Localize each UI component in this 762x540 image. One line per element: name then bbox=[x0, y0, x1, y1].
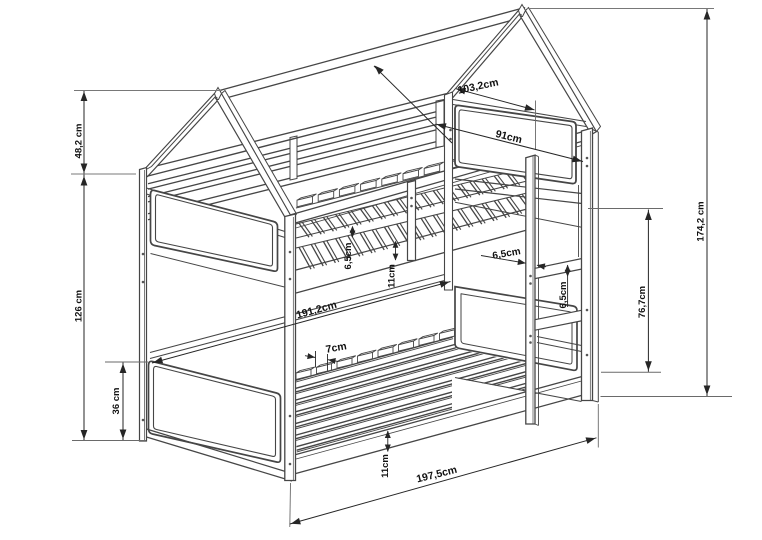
svg-text:48,2 cm: 48,2 cm bbox=[74, 124, 85, 159]
svg-text:76,7cm: 76,7cm bbox=[637, 286, 648, 318]
svg-text:174,2 cm: 174,2 cm bbox=[696, 201, 707, 241]
svg-text:6,5cm: 6,5cm bbox=[343, 243, 354, 270]
svg-text:11cm: 11cm bbox=[387, 264, 398, 288]
svg-text:6,5cm: 6,5cm bbox=[558, 282, 569, 309]
svg-text:11cm: 11cm bbox=[380, 454, 391, 478]
svg-text:126 cm: 126 cm bbox=[74, 290, 85, 322]
svg-text:36 cm: 36 cm bbox=[111, 388, 122, 415]
